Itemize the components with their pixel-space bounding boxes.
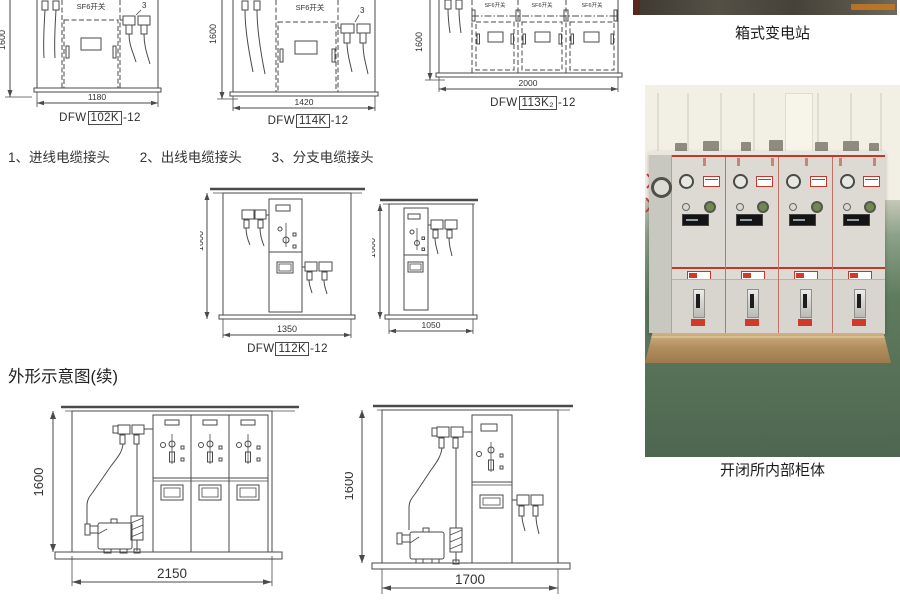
incoming-cables [242, 1, 265, 74]
caption-box-substation: 箱式变电站 [645, 22, 900, 43]
width-dimension: 1050 [389, 319, 473, 334]
indicator-light [789, 203, 797, 211]
width-dim-text: 1350 [277, 324, 297, 334]
model-code: 113K₂ [519, 96, 557, 110]
incoming-cables [42, 1, 59, 58]
height-dimension: 1600 [31, 411, 56, 552]
switch-module [472, 415, 512, 563]
drawing-dfw102k: 1600 SF6开关 3 1180 [0, 0, 175, 128]
cabinet-side-face [649, 155, 672, 333]
height-dimension: 1600 [200, 193, 210, 319]
model-code: 112K [275, 342, 309, 356]
width-dimension: 1420 [233, 96, 375, 111]
door-handle [854, 289, 866, 318]
pressure-gauge-icon [679, 174, 694, 189]
width-dimension: 1180 [37, 92, 158, 107]
warning-sticker [798, 319, 812, 326]
height-dim-text: 1600 [31, 468, 46, 497]
model-code: 114K [296, 114, 330, 128]
fault-display [843, 214, 870, 226]
red-trim-line [779, 267, 832, 269]
indicator-light [682, 203, 690, 211]
width-dim-text: 1420 [295, 97, 314, 107]
callout-3: 3 [360, 6, 365, 15]
position-indicator [811, 201, 823, 213]
model-prefix: DFW [490, 97, 517, 109]
wall-line [687, 93, 689, 151]
cabinet-outline [372, 410, 570, 569]
width-dimension: 2000 [439, 77, 618, 92]
indicator-light [843, 203, 851, 211]
legend-item-2: 2、出线电缆接头 [140, 150, 242, 165]
sf6-switch-label: SF6开关 [77, 1, 106, 11]
fault-display [736, 214, 763, 226]
model-suffix: -12 [558, 97, 576, 109]
warning-sticker [852, 319, 866, 326]
switch-module [269, 199, 302, 312]
cable-connectors [113, 425, 153, 444]
drawing-1050-cabinet: 1600 1050 [372, 190, 484, 340]
height-dim-text: 1600 [372, 238, 377, 258]
wall-line [657, 93, 659, 151]
lower-cable-connectors [302, 262, 332, 294]
model-code: 102K [88, 111, 122, 125]
cable-compartment-door [833, 279, 886, 334]
height-dimension: 1600 [372, 204, 383, 319]
compartment-doors [476, 22, 614, 70]
legend-item-3: 3、分支电缆接头 [272, 150, 374, 165]
cabinet-bay [672, 157, 725, 333]
model-label-dfw113k: DFW113K₂-12 [468, 96, 598, 110]
pressure-gauge-icon [651, 177, 672, 198]
transformer-unit [397, 528, 444, 563]
cable-connector-legend: 1、进线电缆接头 2、出线电缆接头 3、分支电缆接头 [8, 146, 400, 166]
wall-line [720, 93, 722, 151]
fault-display [789, 214, 816, 226]
cable-compartment-door [779, 279, 832, 334]
sf6-switch-label: SF6开关 [531, 1, 553, 9]
indicator-light [736, 203, 744, 211]
pressure-gauge-icon [840, 174, 855, 189]
roof [210, 189, 365, 193]
warning-sticker [691, 319, 705, 326]
position-indicator [864, 201, 876, 213]
model-prefix: DFW [268, 115, 295, 127]
cabinet-bay [832, 157, 886, 333]
width-dimension: 1350 [223, 319, 351, 338]
door-handle [693, 289, 705, 318]
height-dim-text: 1600 [414, 32, 424, 52]
photo-watermark [851, 4, 895, 10]
model-label-dfw114k: DFW114K-12 [248, 114, 368, 128]
cabinet-outline [34, 0, 161, 92]
branch-cable-connectors [120, 16, 150, 64]
model-suffix: -12 [331, 115, 349, 127]
lower-cable-connectors [512, 495, 543, 534]
sf6-switch-label: SF6开关 [296, 2, 325, 12]
fuse [450, 528, 462, 552]
position-indicator [704, 201, 716, 213]
model-prefix: DFW [247, 343, 274, 355]
height-dimension: 1600 [414, 0, 445, 80]
cabinet-outline [436, 0, 622, 77]
position-indicator [757, 201, 769, 213]
legend-item-1: 1、进线电缆接头 [8, 150, 110, 165]
cable-connectors [428, 220, 457, 256]
transformer-unit [85, 519, 132, 553]
nameplate [703, 176, 720, 187]
height-dim-text: 1600 [208, 24, 218, 44]
model-label-dfw112k: DFW112K-12 [225, 342, 350, 356]
sf6-switch-label: SF6开关 [484, 1, 506, 9]
cable-compartment-door [726, 279, 779, 334]
section-heading: 外形示意图(续) [8, 363, 118, 387]
width-dim-text: 1700 [455, 572, 485, 587]
roof [373, 406, 573, 410]
red-trim-line [726, 267, 779, 269]
cabinet-bay [778, 157, 832, 333]
width-dimension: 2150 [72, 556, 272, 586]
pressure-gauge-icon [733, 174, 748, 189]
fault-display [682, 214, 709, 226]
switch-panels [153, 415, 268, 552]
photo-maroon-strip [633, 0, 640, 15]
sf6-switch-label: SF6开关 [581, 1, 603, 9]
nameplate [756, 176, 773, 187]
drawing-dfw112k: 1600 [200, 185, 385, 345]
wall-line [753, 93, 755, 151]
callout-3: 3 [142, 1, 147, 10]
cabinet-bays [672, 157, 885, 333]
width-dim-text: 1180 [88, 92, 107, 102]
model-label-dfw102k: DFW102K-12 [40, 111, 160, 125]
red-trim-line [833, 267, 886, 269]
drawing-2150-cabinet: 1600 [25, 398, 317, 613]
height-dimension: 1600 [0, 0, 32, 97]
door-handle [800, 289, 812, 318]
wooden-pallet [645, 333, 891, 363]
switch-module [404, 208, 428, 310]
pressure-gauge-icon [786, 174, 801, 189]
nameplate [810, 176, 827, 187]
cabinet-outline [230, 0, 378, 96]
warning-sticker [745, 319, 759, 326]
width-dim-text: 2000 [519, 78, 538, 88]
catalog-page: 1600 SF6开关 3 1180 [0, 0, 900, 613]
cabinet-outline [219, 193, 355, 319]
substation-photo-bottom-sliver [633, 0, 897, 15]
height-dimension: 1600 [345, 410, 365, 563]
cabinet-bay [725, 157, 779, 333]
cable-runs [409, 448, 459, 564]
door-handle [747, 289, 759, 318]
model-prefix: DFW [59, 112, 86, 124]
cabinet-body [649, 151, 885, 333]
branch-cable-connectors [338, 24, 370, 74]
roof [380, 200, 478, 204]
switchgear-cabinet-photo [645, 85, 900, 457]
width-dimension: 1700 [382, 569, 558, 594]
height-dim-text: 1600 [200, 231, 205, 251]
cable-compartment-door [672, 279, 725, 334]
model-suffix: -12 [123, 112, 141, 124]
fuse [131, 516, 143, 540]
upper-cable-connectors [432, 427, 472, 448]
roof [61, 407, 299, 411]
caption-cabinet-interior: 开闭所内部柜体 [645, 459, 900, 480]
model-suffix: -12 [310, 343, 328, 355]
height-dim-text: 1600 [0, 30, 7, 50]
incoming-cables [445, 0, 462, 33]
wall-line [880, 93, 882, 151]
width-dim-text: 1050 [422, 320, 441, 330]
nameplate [863, 176, 880, 187]
upper-cable-connectors [242, 210, 269, 246]
drawing-1700-cabinet: 1600 [345, 398, 585, 613]
height-dim-text: 1600 [345, 472, 356, 501]
drawing-dfw114k: 1600 SF6开关 3 1420 [208, 0, 408, 130]
red-trim-line [672, 267, 725, 269]
width-dim-text: 2150 [157, 566, 187, 581]
background-column [785, 93, 813, 153]
